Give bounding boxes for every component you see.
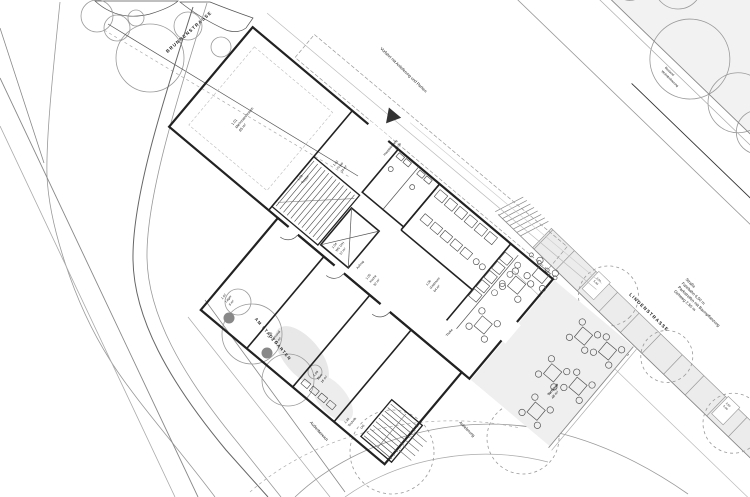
hall-room: 1.01 Mehrzweckraum 85 m² (180, 36, 352, 210)
southwest-road-edge (0, 78, 198, 497)
west-streets: AM STADTGARTEN Außenbereich (0, 2, 361, 497)
bar-seats (490, 261, 522, 297)
site-plan-drawing: BRUNNENSTRASSE (0, 0, 750, 497)
shrub-icon (224, 313, 235, 324)
kitchen: 1.05 Küche 32 m² (362, 184, 510, 336)
street-info-line: Parkstreifen mit Baumpflanzung (677, 285, 721, 328)
entrance-door-gap (366, 121, 391, 144)
wing-doors (280, 225, 391, 322)
building: Terrasse 48 m² 1.01 Mehrzweckraum 85 m² … (92, 1, 658, 497)
shrub-icon (262, 348, 273, 359)
northwest-parcel: BRUNNENSTRASSE (81, 0, 358, 178)
vorfahrt-label: Vorfahrt mit Anlieferung und Parken (379, 46, 428, 93)
forecourt-edge-2 (410, 123, 602, 284)
elevator: Aufzug (321, 208, 386, 274)
canopy-outline (295, 35, 567, 270)
corner-curb (0, 28, 44, 163)
site-plan-page: BRUNNENSTRASSE (0, 0, 750, 497)
main-entrance: Haupteingang ±0,00 (359, 104, 414, 160)
stair2-label: UG (359, 423, 365, 430)
south-drive: Anlieferung (250, 402, 688, 497)
counter-units (469, 252, 513, 302)
staircase-2: UG (356, 395, 423, 462)
drive-edge-2 (345, 454, 548, 497)
staircase-1: 1.03 Treppe (272, 157, 360, 245)
west-road-curb (47, 2, 215, 497)
right-street-info-block: Straße Fahrbahn 6,50 m Parkstreifen mit … (673, 277, 729, 332)
site-road-inner (147, 3, 281, 497)
aussenbereich-label: Außenbereich (309, 420, 329, 442)
drive-edge (295, 424, 688, 497)
southwest-road-edge-2 (0, 126, 175, 497)
wing: 1.07 Lager 8 m² 1.08 Personal 14 m² 1.09… (201, 216, 464, 464)
ceiling-opening-dashed (189, 47, 333, 191)
garden-bed-shape (95, 1, 178, 16)
parcel-boundary (108, 24, 358, 176)
counter-label: Theke (445, 328, 454, 338)
elevator-label: Aufzug (355, 260, 365, 270)
anlieferung-label: Anlieferung (458, 420, 476, 438)
foyer: 1.02 Foyer 24 m² (332, 157, 349, 173)
forecourt-edge (267, 13, 596, 289)
